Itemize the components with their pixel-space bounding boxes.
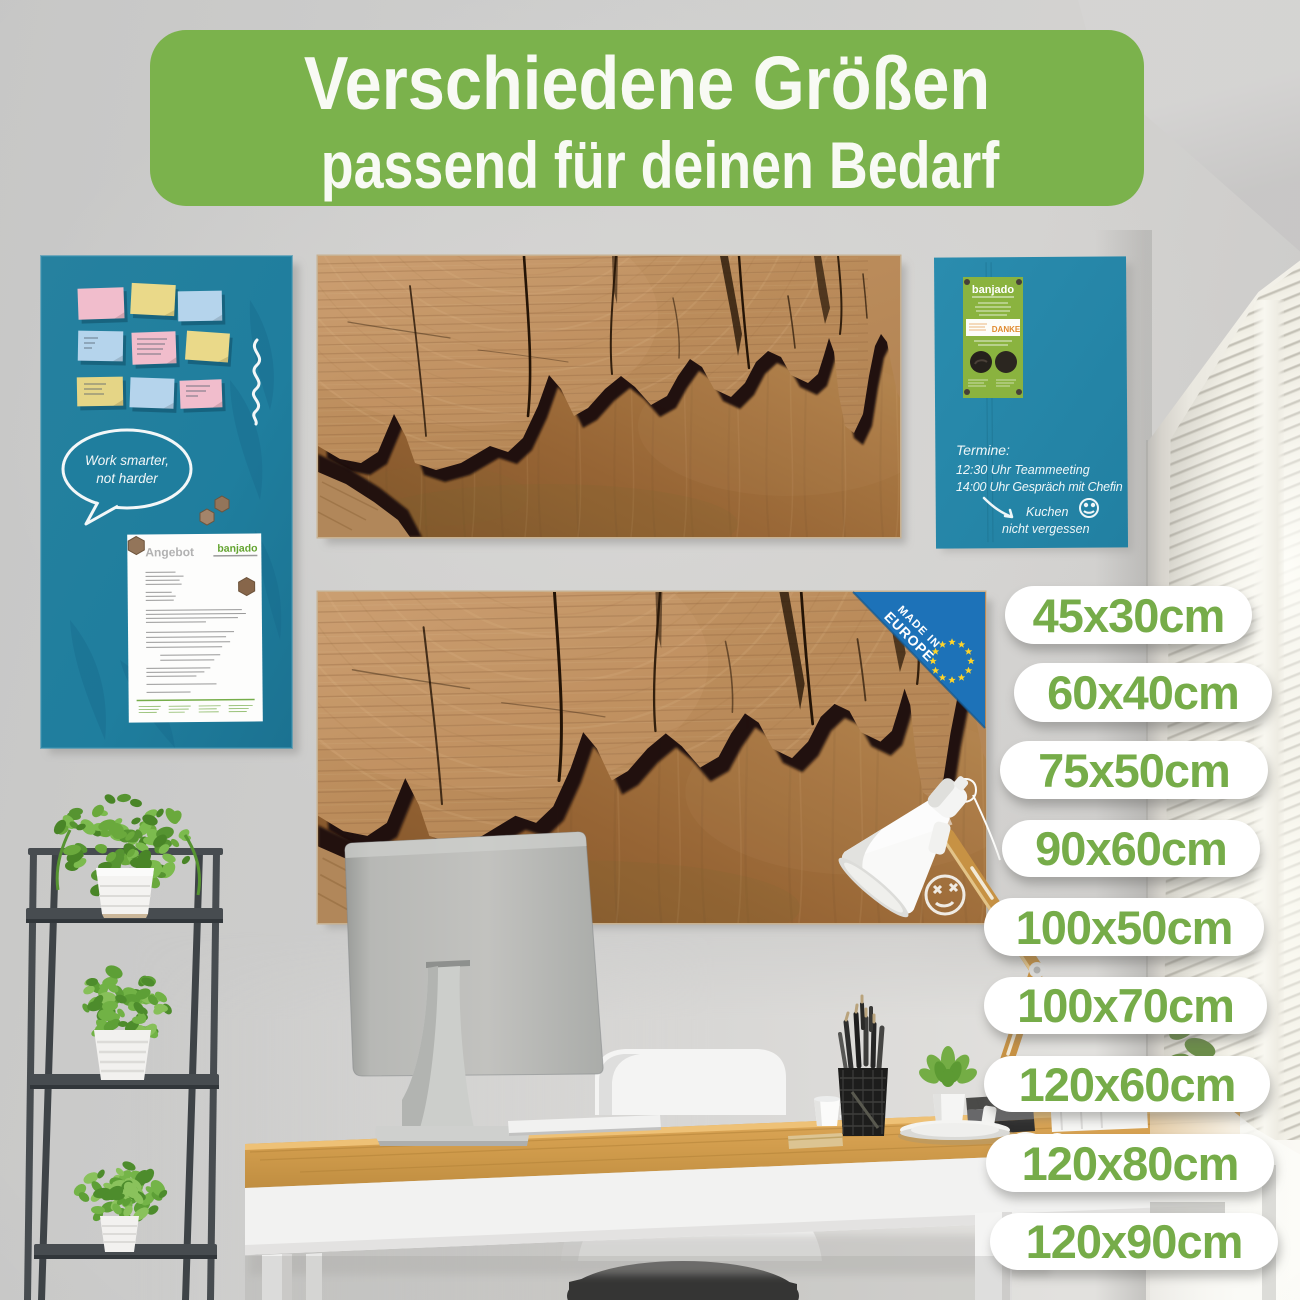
svg-text:Work smarter,: Work smarter, [85, 453, 169, 468]
svg-text:DANKE: DANKE [992, 325, 1021, 334]
svg-text:Termine:: Termine: [956, 442, 1010, 458]
svg-text:Kuchen: Kuchen [1026, 505, 1068, 519]
svg-text:12:30 Uhr Teammeeting: 12:30 Uhr Teammeeting [956, 463, 1090, 477]
svg-text:Angebot: Angebot [145, 545, 194, 559]
svg-text:14:00 Uhr Gespräch mit Chefin: 14:00 Uhr Gespräch mit Chefin [956, 480, 1123, 494]
svg-text:nicht vergessen: nicht vergessen [1002, 522, 1090, 536]
svg-text:banjado: banjado [217, 542, 257, 554]
svg-text:not harder: not harder [96, 471, 158, 486]
svg-text:banjado: banjado [972, 284, 1014, 296]
